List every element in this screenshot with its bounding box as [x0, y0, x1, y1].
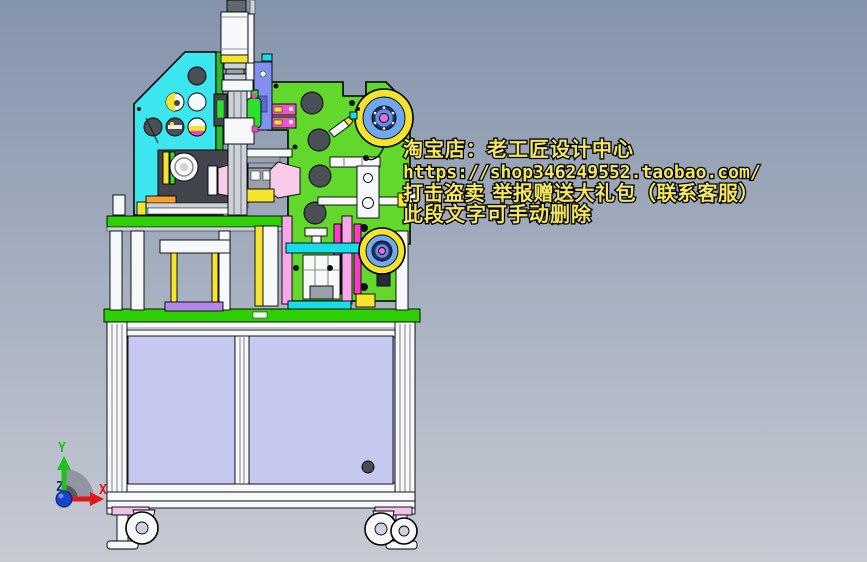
watermark-line-1: 淘宝店：老工匠设计中心 — [403, 137, 634, 161]
sphere-highlight — [59, 494, 64, 499]
guide-column-yellow — [212, 249, 218, 305]
piston-ring — [224, 74, 246, 80]
caster-right — [365, 511, 417, 545]
frame-bottom-rail — [107, 492, 415, 501]
watermark: 淘宝店：老工匠设计中心 https://shop346249552.taobao… — [403, 137, 761, 226]
model-canvas[interactable]: 淘宝店：老工匠设计中心 https://shop346249552.taobao… — [0, 0, 867, 562]
bolt — [293, 145, 298, 150]
press-head — [305, 228, 327, 236]
frame-bottom-rail2 — [107, 501, 415, 508]
piston-ring — [224, 63, 246, 69]
axis-y-label: Y — [58, 441, 66, 456]
support-post — [131, 231, 144, 310]
cylinder-cap — [227, 0, 246, 12]
axis-x-label: X — [99, 483, 107, 498]
purple-base-pad — [165, 302, 223, 311]
bolt — [293, 265, 299, 271]
y-axis-head — [57, 456, 71, 470]
orange-slide — [146, 196, 176, 203]
cylinder-collar — [221, 55, 248, 63]
tape-reel-bottom[interactable] — [359, 228, 405, 274]
base-cabinet[interactable] — [104, 309, 420, 549]
cyan-tab — [262, 54, 272, 61]
origin-sphere — [56, 491, 72, 507]
press-base-cyan — [288, 301, 351, 309]
gantry-hole-white — [188, 93, 206, 111]
motor-strip-yellow — [163, 152, 169, 184]
press-column-yellow — [255, 226, 263, 306]
horn-stem — [208, 166, 217, 195]
block-stripe — [274, 120, 282, 125]
cad-viewport[interactable]: 淘宝店：老工匠设计中心 https://shop346249552.taobao… — [0, 0, 867, 562]
carriage-hole — [260, 71, 266, 77]
plate-hole — [309, 165, 331, 187]
bolt — [327, 265, 333, 271]
tabletop-insert — [253, 312, 267, 318]
rod-top — [250, 0, 255, 14]
plate-hole — [301, 92, 323, 114]
left-bracket — [113, 195, 125, 215]
piston-block — [222, 80, 253, 91]
crimp-horn-right — [270, 162, 300, 198]
bolt — [137, 107, 141, 111]
yellow-block — [356, 294, 375, 307]
deck-plate — [107, 216, 291, 227]
press-column-pink — [342, 216, 352, 304]
watermark-line-2: https://shop346249552.taobao.com/ — [403, 162, 761, 183]
axis-triad: Z Y X — [56, 441, 107, 507]
plate-hole — [308, 129, 330, 151]
slider-dot — [252, 126, 258, 132]
gantry-hole — [188, 67, 206, 85]
support-post — [110, 231, 122, 310]
side-rod — [248, 14, 254, 63]
press-die — [310, 286, 333, 299]
door-knob[interactable] — [362, 461, 374, 473]
guide-rod — [330, 157, 380, 167]
lower-plate — [160, 240, 230, 253]
air-cylinder — [221, 12, 248, 55]
block-dot — [289, 120, 293, 124]
guide-column-yellow — [171, 249, 177, 305]
rail-slider — [224, 118, 254, 144]
bolt — [349, 100, 355, 106]
gripper-dot — [252, 94, 257, 99]
press-column-pink — [282, 216, 292, 304]
rail-clamp-inner — [217, 100, 224, 118]
block-dot — [289, 107, 293, 111]
press-cyan-beam — [286, 243, 360, 253]
cabinet-door-left[interactable] — [128, 336, 235, 484]
door-mullion — [235, 336, 249, 484]
sensor-circle — [166, 118, 184, 136]
bolt — [274, 84, 279, 89]
sensor-circle — [166, 93, 184, 111]
watermark-line-4: 此段文字可手动删除 — [403, 202, 592, 226]
guide-slot — [251, 171, 260, 180]
block-stripe — [274, 107, 282, 112]
piston-ring — [226, 69, 244, 74]
stopper-yellow — [137, 202, 146, 215]
vertical-rail — [228, 91, 247, 215]
press-column-white — [263, 226, 278, 306]
